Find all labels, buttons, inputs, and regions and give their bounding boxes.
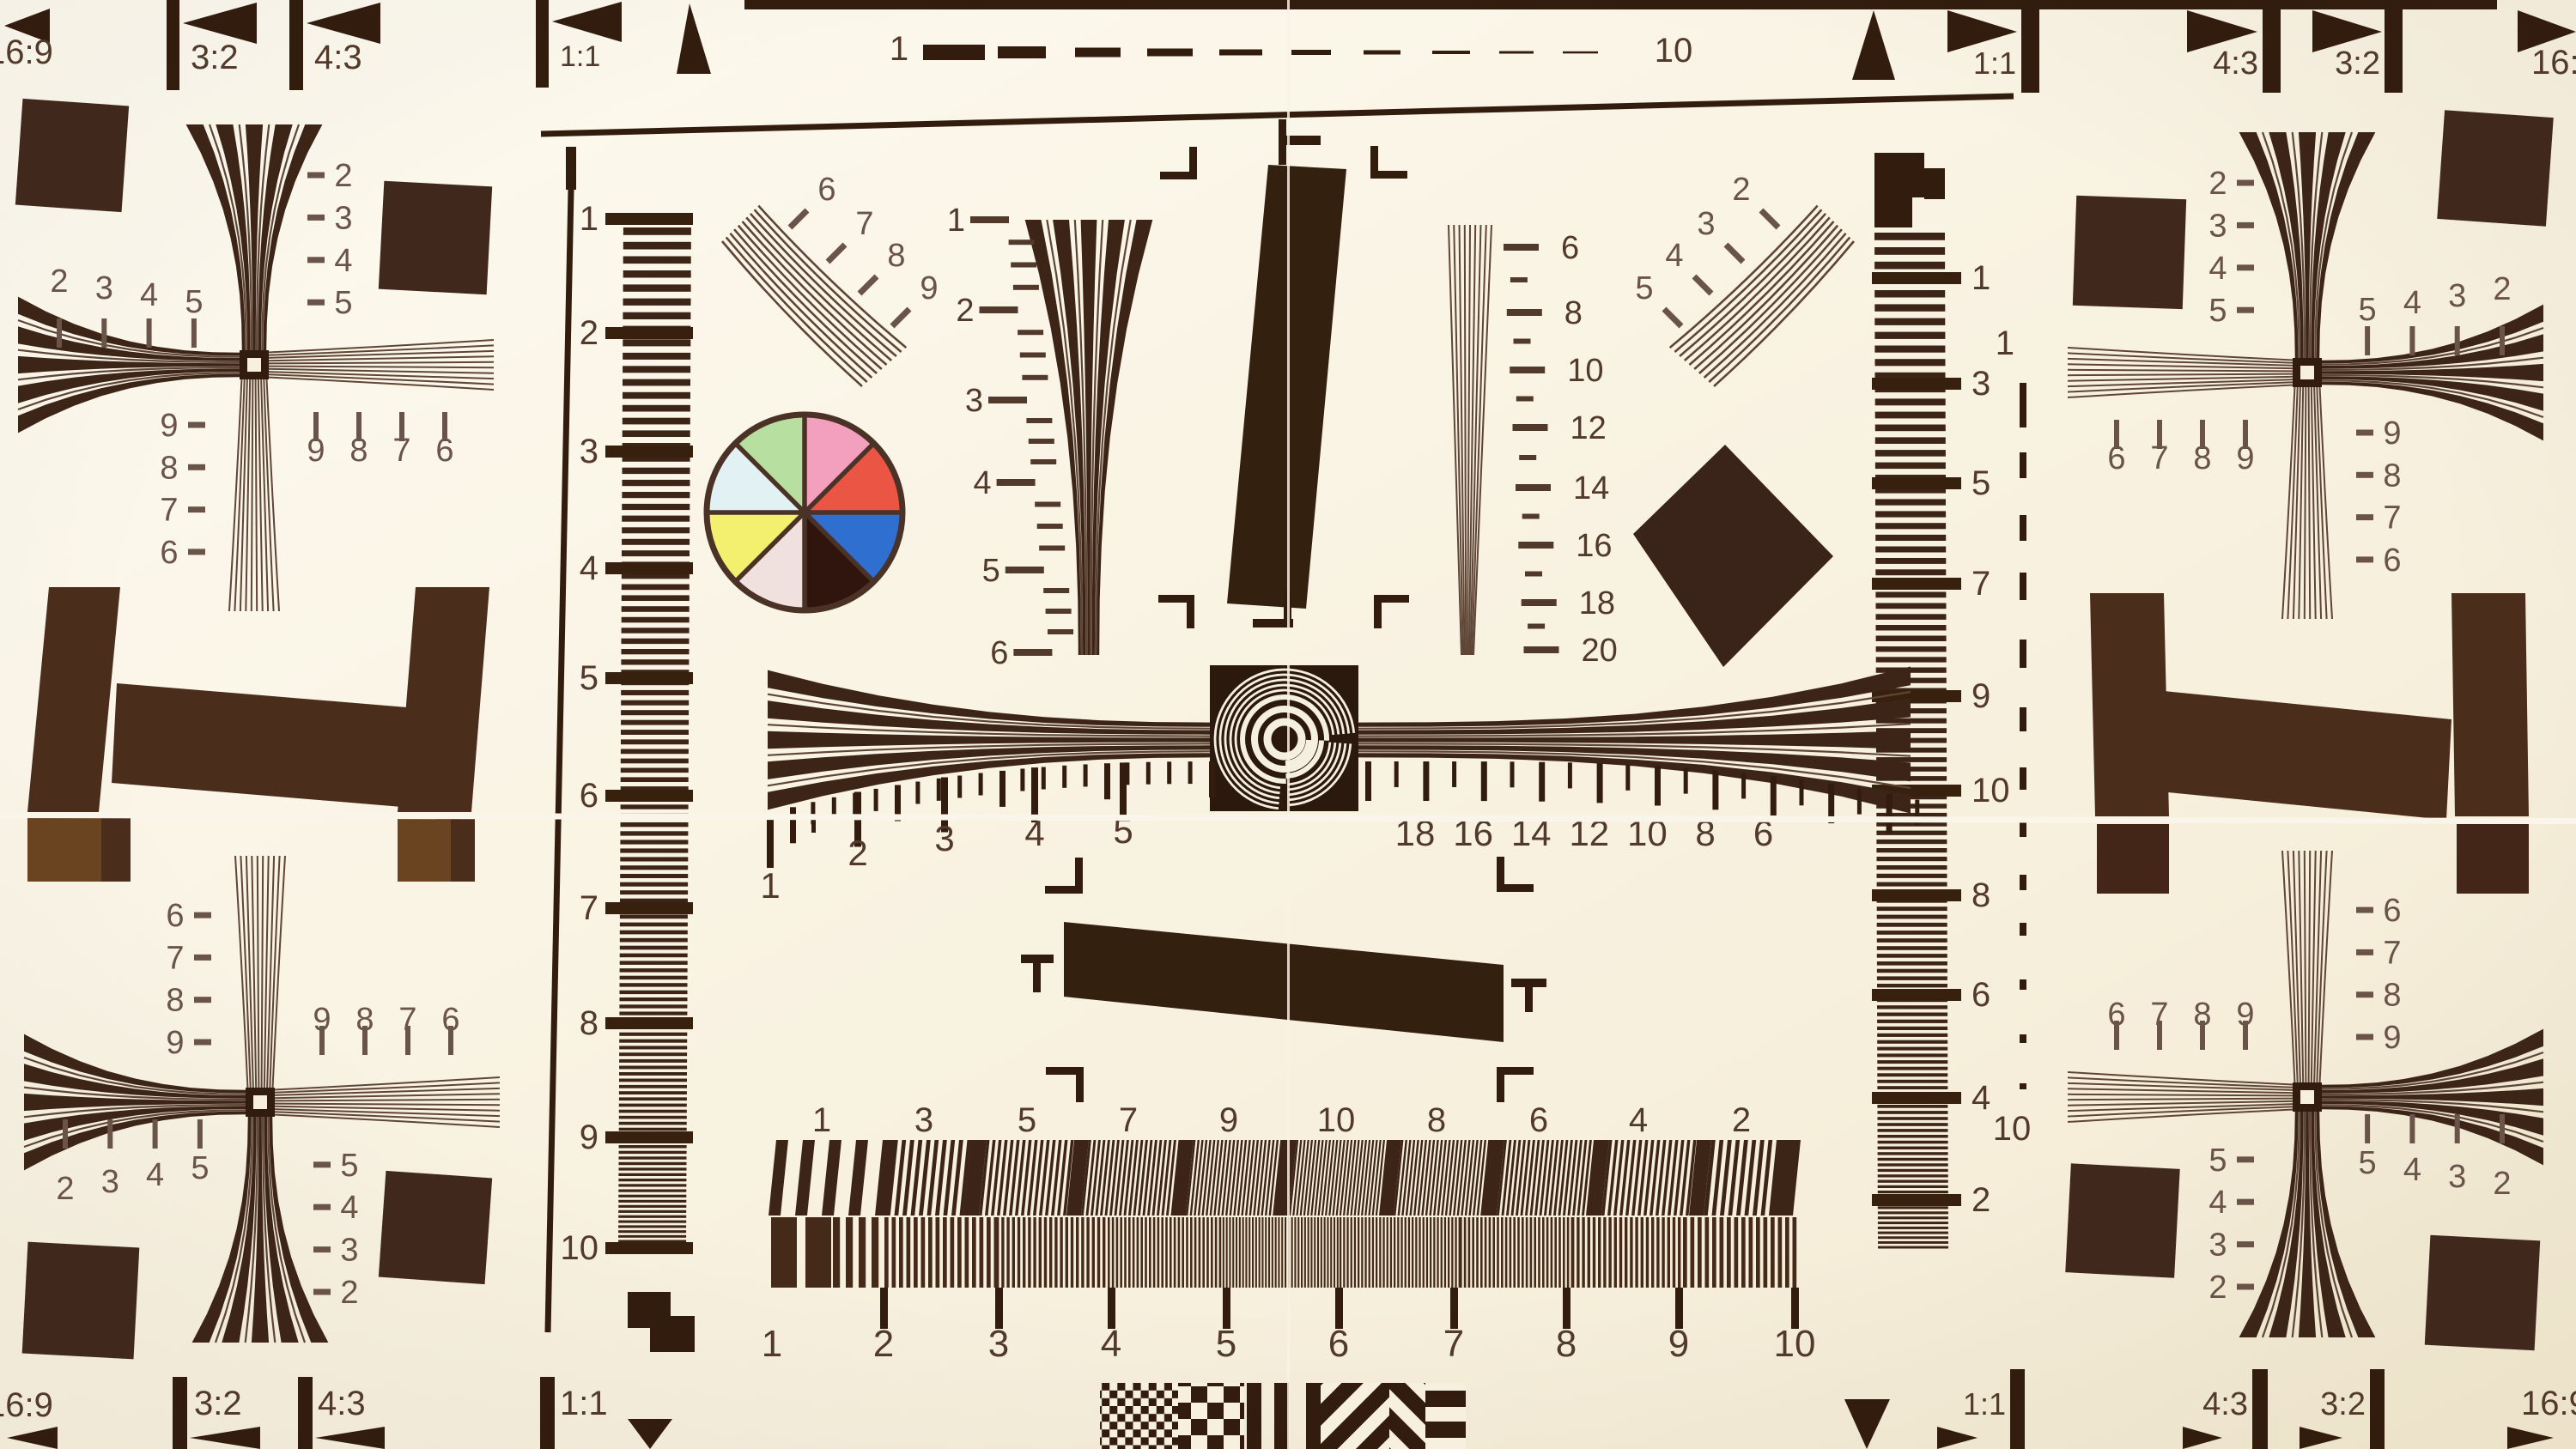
svg-text:4:3: 4:3	[318, 1385, 366, 1422]
svg-text:4: 4	[146, 1157, 164, 1193]
svg-text:9: 9	[313, 1002, 331, 1038]
svg-text:8: 8	[1556, 1323, 1577, 1365]
svg-text:7: 7	[398, 1002, 416, 1038]
svg-text:3: 3	[934, 818, 954, 858]
svg-text:6: 6	[2383, 543, 2401, 579]
svg-text:10: 10	[1317, 1101, 1356, 1139]
svg-text:7: 7	[2383, 500, 2401, 537]
svg-text:4: 4	[1629, 1101, 1648, 1139]
svg-text:4:3: 4:3	[314, 39, 362, 76]
svg-text:7: 7	[2150, 997, 2168, 1033]
svg-text:3: 3	[1697, 206, 1715, 242]
svg-text:4: 4	[1101, 1323, 1121, 1365]
svg-text:3: 3	[334, 200, 352, 236]
svg-text:3: 3	[101, 1164, 119, 1200]
svg-text:1: 1	[1971, 259, 1990, 297]
svg-text:6: 6	[166, 898, 184, 934]
svg-text:1:1: 1:1	[1963, 1386, 2006, 1422]
svg-text:1: 1	[762, 1323, 782, 1365]
svg-text:9: 9	[160, 408, 178, 444]
svg-text:7: 7	[855, 206, 873, 242]
svg-text:6: 6	[1971, 976, 1990, 1014]
svg-text:5: 5	[1635, 270, 1653, 306]
svg-text:6: 6	[2107, 997, 2125, 1033]
svg-text:5: 5	[334, 285, 352, 321]
svg-text:2: 2	[2208, 1270, 2227, 1306]
svg-text:2: 2	[2208, 166, 2227, 202]
svg-text:5: 5	[1971, 464, 1990, 502]
svg-text:3: 3	[580, 433, 598, 470]
svg-text:7: 7	[2383, 935, 2401, 971]
svg-text:2: 2	[2493, 271, 2511, 307]
svg-text:3:2: 3:2	[194, 1385, 242, 1422]
svg-text:3:2: 3:2	[2320, 1386, 2366, 1422]
svg-text:4: 4	[2403, 285, 2421, 321]
svg-text:16:9: 16:9	[0, 33, 53, 71]
svg-text:5: 5	[1216, 1323, 1236, 1365]
svg-text:20: 20	[1582, 633, 1618, 669]
svg-text:4: 4	[1971, 1079, 1990, 1117]
svg-text:10: 10	[1993, 1110, 2032, 1148]
svg-text:3: 3	[340, 1233, 358, 1269]
svg-text:9: 9	[1219, 1101, 1238, 1139]
svg-text:7: 7	[1119, 1101, 1138, 1139]
svg-text:1:1: 1:1	[560, 40, 600, 73]
svg-text:9: 9	[1668, 1323, 1689, 1365]
svg-text:12: 12	[1571, 410, 1607, 446]
svg-text:8: 8	[2383, 978, 2401, 1014]
svg-text:16:9: 16:9	[0, 1386, 53, 1424]
svg-text:6: 6	[990, 635, 1008, 671]
svg-text:8: 8	[349, 433, 368, 469]
svg-text:2: 2	[848, 833, 867, 873]
svg-text:6: 6	[160, 535, 178, 571]
svg-text:8: 8	[166, 983, 184, 1019]
svg-text:8: 8	[1564, 295, 1583, 331]
svg-text:9: 9	[2236, 997, 2254, 1033]
svg-text:9: 9	[1971, 677, 1990, 715]
svg-text:16: 16	[1576, 528, 1612, 564]
svg-text:9: 9	[307, 433, 325, 469]
svg-text:1: 1	[812, 1101, 831, 1139]
svg-text:2: 2	[50, 264, 68, 300]
svg-text:4: 4	[580, 549, 598, 587]
svg-text:5: 5	[982, 553, 1000, 589]
svg-text:9: 9	[2236, 440, 2254, 476]
svg-text:7: 7	[2150, 440, 2168, 476]
svg-text:5: 5	[2208, 1143, 2227, 1179]
svg-text:6: 6	[1328, 1323, 1349, 1365]
svg-text:6: 6	[435, 433, 453, 469]
svg-text:4: 4	[340, 1190, 358, 1226]
svg-text:10: 10	[1971, 772, 2010, 809]
svg-text:8: 8	[887, 238, 905, 274]
svg-text:3: 3	[914, 1101, 933, 1139]
svg-text:1:1: 1:1	[560, 1385, 608, 1422]
svg-text:10: 10	[561, 1229, 599, 1267]
svg-text:9: 9	[580, 1119, 598, 1156]
svg-text:4: 4	[140, 277, 158, 313]
svg-text:5: 5	[2359, 292, 2377, 328]
svg-text:4: 4	[2208, 1185, 2227, 1221]
svg-text:4: 4	[973, 465, 991, 501]
svg-text:3: 3	[2448, 278, 2466, 314]
svg-text:3:2: 3:2	[2335, 45, 2380, 82]
svg-text:6: 6	[441, 1002, 459, 1038]
svg-text:5: 5	[1018, 1101, 1036, 1139]
svg-text:16:9: 16:9	[2521, 1385, 2576, 1422]
svg-text:10: 10	[1774, 1323, 1816, 1365]
svg-text:10: 10	[1567, 353, 1603, 389]
svg-text:4: 4	[1665, 238, 1683, 274]
svg-text:2: 2	[1971, 1181, 1990, 1219]
svg-text:1: 1	[580, 200, 598, 238]
svg-text:1: 1	[1996, 324, 2014, 362]
svg-text:16:9: 16:9	[2531, 44, 2576, 82]
svg-text:3: 3	[2208, 1228, 2227, 1264]
svg-text:4:3: 4:3	[2213, 45, 2258, 82]
svg-text:5: 5	[191, 1150, 209, 1186]
svg-text:8: 8	[1971, 876, 1990, 914]
svg-text:4: 4	[2208, 251, 2227, 287]
svg-text:3: 3	[2448, 1159, 2466, 1195]
svg-text:1:1: 1:1	[1973, 45, 2016, 81]
svg-text:9: 9	[2383, 415, 2401, 452]
svg-text:4: 4	[2403, 1152, 2421, 1188]
svg-text:9: 9	[2383, 1020, 2401, 1056]
svg-text:2: 2	[56, 1171, 74, 1207]
svg-text:6: 6	[2107, 440, 2125, 476]
svg-text:8: 8	[160, 450, 178, 486]
svg-text:7: 7	[392, 433, 410, 469]
svg-text:5: 5	[340, 1148, 358, 1184]
svg-text:1: 1	[947, 203, 965, 239]
svg-text:7: 7	[160, 493, 178, 529]
svg-text:4: 4	[334, 243, 352, 279]
svg-text:5: 5	[185, 284, 203, 320]
svg-text:6: 6	[1529, 1101, 1548, 1139]
svg-text:6: 6	[817, 172, 835, 208]
svg-text:5: 5	[580, 659, 598, 697]
svg-text:2: 2	[334, 158, 352, 194]
svg-text:2: 2	[2493, 1166, 2511, 1202]
svg-text:1: 1	[890, 30, 908, 68]
svg-text:2: 2	[340, 1275, 358, 1311]
svg-text:18: 18	[1579, 585, 1615, 621]
svg-text:2: 2	[580, 314, 598, 352]
svg-text:10: 10	[1655, 32, 1693, 70]
svg-text:3: 3	[2208, 208, 2227, 244]
svg-text:6: 6	[2383, 893, 2401, 929]
svg-text:2: 2	[873, 1323, 894, 1365]
svg-text:3: 3	[1971, 365, 1990, 403]
svg-text:6: 6	[580, 777, 598, 815]
svg-text:9: 9	[166, 1025, 184, 1061]
svg-text:8: 8	[1427, 1101, 1446, 1139]
svg-text:7: 7	[580, 889, 598, 927]
svg-text:3:2: 3:2	[191, 39, 239, 76]
svg-text:4:3: 4:3	[2202, 1386, 2248, 1422]
svg-text:7: 7	[1443, 1323, 1464, 1365]
svg-text:3: 3	[965, 383, 983, 419]
svg-text:8: 8	[580, 1004, 598, 1042]
svg-text:1: 1	[760, 865, 780, 906]
svg-text:2: 2	[1732, 172, 1750, 208]
svg-text:8: 8	[355, 1002, 374, 1038]
svg-text:2: 2	[956, 293, 974, 329]
svg-text:7: 7	[166, 940, 184, 976]
svg-text:5: 5	[2359, 1145, 2377, 1181]
svg-text:2: 2	[1732, 1101, 1751, 1139]
svg-text:8: 8	[2193, 997, 2211, 1033]
svg-text:3: 3	[988, 1323, 1009, 1365]
svg-text:8: 8	[2193, 440, 2211, 476]
svg-text:7: 7	[1971, 565, 1990, 603]
svg-text:9: 9	[920, 270, 938, 306]
svg-text:8: 8	[2383, 458, 2401, 494]
svg-text:5: 5	[2208, 293, 2227, 329]
svg-text:3: 3	[95, 270, 113, 306]
svg-text:6: 6	[1561, 230, 1579, 266]
svg-text:14: 14	[1573, 470, 1609, 506]
